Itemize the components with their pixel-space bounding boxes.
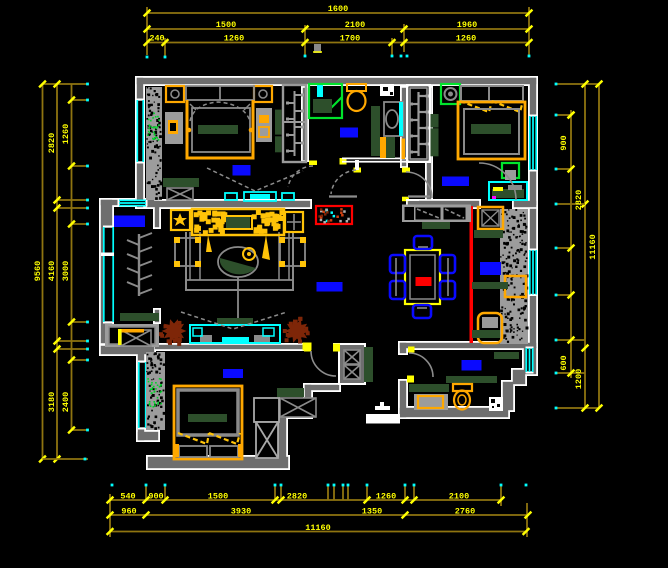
svg-text:4160: 4160 xyxy=(47,261,57,281)
svg-text:3000: 3000 xyxy=(61,261,71,281)
svg-text:3180: 3180 xyxy=(47,392,57,412)
svg-text:600: 600 xyxy=(559,355,569,370)
svg-text:1960: 1960 xyxy=(457,20,477,30)
svg-text:900: 900 xyxy=(148,492,163,502)
svg-text:1260: 1260 xyxy=(61,124,71,144)
svg-text:900: 900 xyxy=(559,135,569,150)
svg-text:1200: 1200 xyxy=(574,369,584,389)
svg-text:2100: 2100 xyxy=(345,20,365,30)
svg-text:1260: 1260 xyxy=(456,34,476,44)
svg-text:1500: 1500 xyxy=(216,20,236,30)
svg-text:1500: 1500 xyxy=(208,492,228,502)
svg-text:11160: 11160 xyxy=(588,234,598,260)
svg-text:960: 960 xyxy=(121,507,136,517)
svg-text:1350: 1350 xyxy=(362,507,382,517)
svg-text:1600: 1600 xyxy=(328,4,348,14)
svg-text:1260: 1260 xyxy=(376,492,396,502)
svg-text:2820: 2820 xyxy=(47,133,57,153)
svg-text:540: 540 xyxy=(120,492,135,502)
svg-text:2100: 2100 xyxy=(449,492,469,502)
svg-text:2820: 2820 xyxy=(287,492,307,502)
svg-text:1700: 1700 xyxy=(340,34,360,44)
svg-text:11160: 11160 xyxy=(305,523,331,533)
svg-text:2760: 2760 xyxy=(455,507,475,517)
svg-text:1260: 1260 xyxy=(224,34,244,44)
svg-text:240: 240 xyxy=(149,34,164,44)
svg-text:2820: 2820 xyxy=(574,190,584,210)
svg-text:3930: 3930 xyxy=(231,507,251,517)
svg-text:9560: 9560 xyxy=(33,261,43,281)
svg-text:2400: 2400 xyxy=(61,392,71,412)
